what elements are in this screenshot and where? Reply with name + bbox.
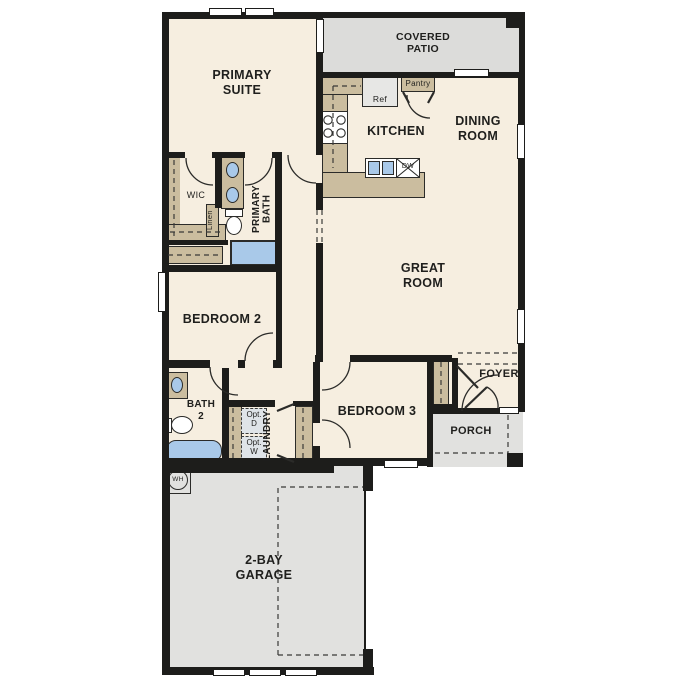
label-great-room: GREATROOM <box>373 261 473 291</box>
wall-garage-west <box>162 465 170 675</box>
toilet-bowl-primary <box>226 216 242 235</box>
storage-shelf <box>165 246 223 264</box>
garage-door-panel-3 <box>285 669 317 676</box>
wall-foyer-closet <box>452 358 458 408</box>
wall-closet-south-stub <box>293 461 315 466</box>
wall-garage-north <box>162 465 334 473</box>
label-foyer: FOYER <box>470 368 528 381</box>
label-dining-room: DININGROOM <box>428 114 528 144</box>
porch-column <box>507 453 523 467</box>
patio-corner-post <box>506 12 525 28</box>
window-suite-2 <box>245 8 274 16</box>
wall-bedroom3-west-b <box>313 446 320 464</box>
label-bedroom-2: BEDROOM 2 <box>172 312 272 327</box>
floor-plan: Ref Pantry Opt.D Opt.W WH <box>0 0 687 687</box>
wall-garage-east-line <box>364 490 366 650</box>
window-suite-patio <box>316 19 324 53</box>
water-heater-label: WH <box>172 476 183 484</box>
wall-bedroom2-south-c <box>273 360 282 368</box>
wall-north-suite <box>162 12 323 19</box>
label-laundry: LAUNDRY <box>263 408 279 464</box>
kitchen-sink-basin-right <box>382 161 394 175</box>
label-garage: 2-BAYGARAGE <box>214 553 314 583</box>
wall-bedroom2-south-b <box>238 360 245 368</box>
wall-north-patio <box>320 12 525 18</box>
water-heater: WH <box>168 470 188 490</box>
label-bedroom-3: BEDROOM 3 <box>327 404 427 419</box>
wall-bedroom2-south-a <box>162 360 210 368</box>
wall-bedroom3-west-a <box>313 362 320 423</box>
wall-wic-shelfband <box>162 240 228 245</box>
garage-door-panel-1 <box>213 669 245 676</box>
wall-bedroom2-east <box>276 265 282 368</box>
foyer-closet <box>433 360 449 406</box>
primary-bath-tub <box>230 240 277 266</box>
label-covered-patio: COVEREDPATIO <box>373 31 473 56</box>
window-bedroom3 <box>384 460 418 468</box>
wall-greatroom-south-b <box>350 355 452 362</box>
wall-bath2-east <box>222 368 229 465</box>
refrigerator: Ref <box>362 76 398 107</box>
pantry-label: Pantry <box>401 76 435 92</box>
label-linen: Linen <box>206 205 219 236</box>
wall-house-north <box>316 72 525 78</box>
garage-door-panel-2 <box>249 669 281 676</box>
wall-laundry-north <box>222 400 275 407</box>
kitchen-sink-basin-left <box>368 161 380 175</box>
wall-closet-north-stub <box>293 401 315 406</box>
bedroom3-closet <box>295 406 313 462</box>
kitchen-counter-top <box>322 77 364 95</box>
label-bath-2: BATH2 <box>181 399 221 423</box>
wall-greatroom-south-a <box>315 355 323 362</box>
window-dining-north <box>454 69 489 77</box>
refrigerator-label: Ref <box>373 94 387 104</box>
window-greatroom-east <box>517 309 525 344</box>
label-dw: DW <box>396 163 420 171</box>
wall-garage-east-stub-top <box>363 465 373 491</box>
label-porch: PORCH <box>441 425 501 438</box>
wall-foyer-south <box>433 408 502 414</box>
vanity-sink-2 <box>226 187 239 203</box>
stove <box>321 111 348 144</box>
wall-hall-greatroom-b <box>316 243 323 355</box>
window-bedroom2 <box>158 272 166 312</box>
wall-garage-east-stub-bottom <box>363 649 373 675</box>
label-primary-suite: PRIMARYSUITE <box>192 68 292 98</box>
label-wic: WIC <box>171 190 221 201</box>
label-primary-bath: PRIMARYBATH <box>252 178 278 240</box>
wall-suite-south-a <box>162 152 185 158</box>
wall-hall-greatroom-a <box>316 183 323 210</box>
window-suite-1 <box>209 8 242 16</box>
wall-bedroom2-north <box>162 265 282 272</box>
vanity-sink-1 <box>226 162 239 178</box>
bath2-sink <box>171 377 183 393</box>
front-door-sill <box>499 407 519 414</box>
laundry-cabinet <box>228 406 242 462</box>
